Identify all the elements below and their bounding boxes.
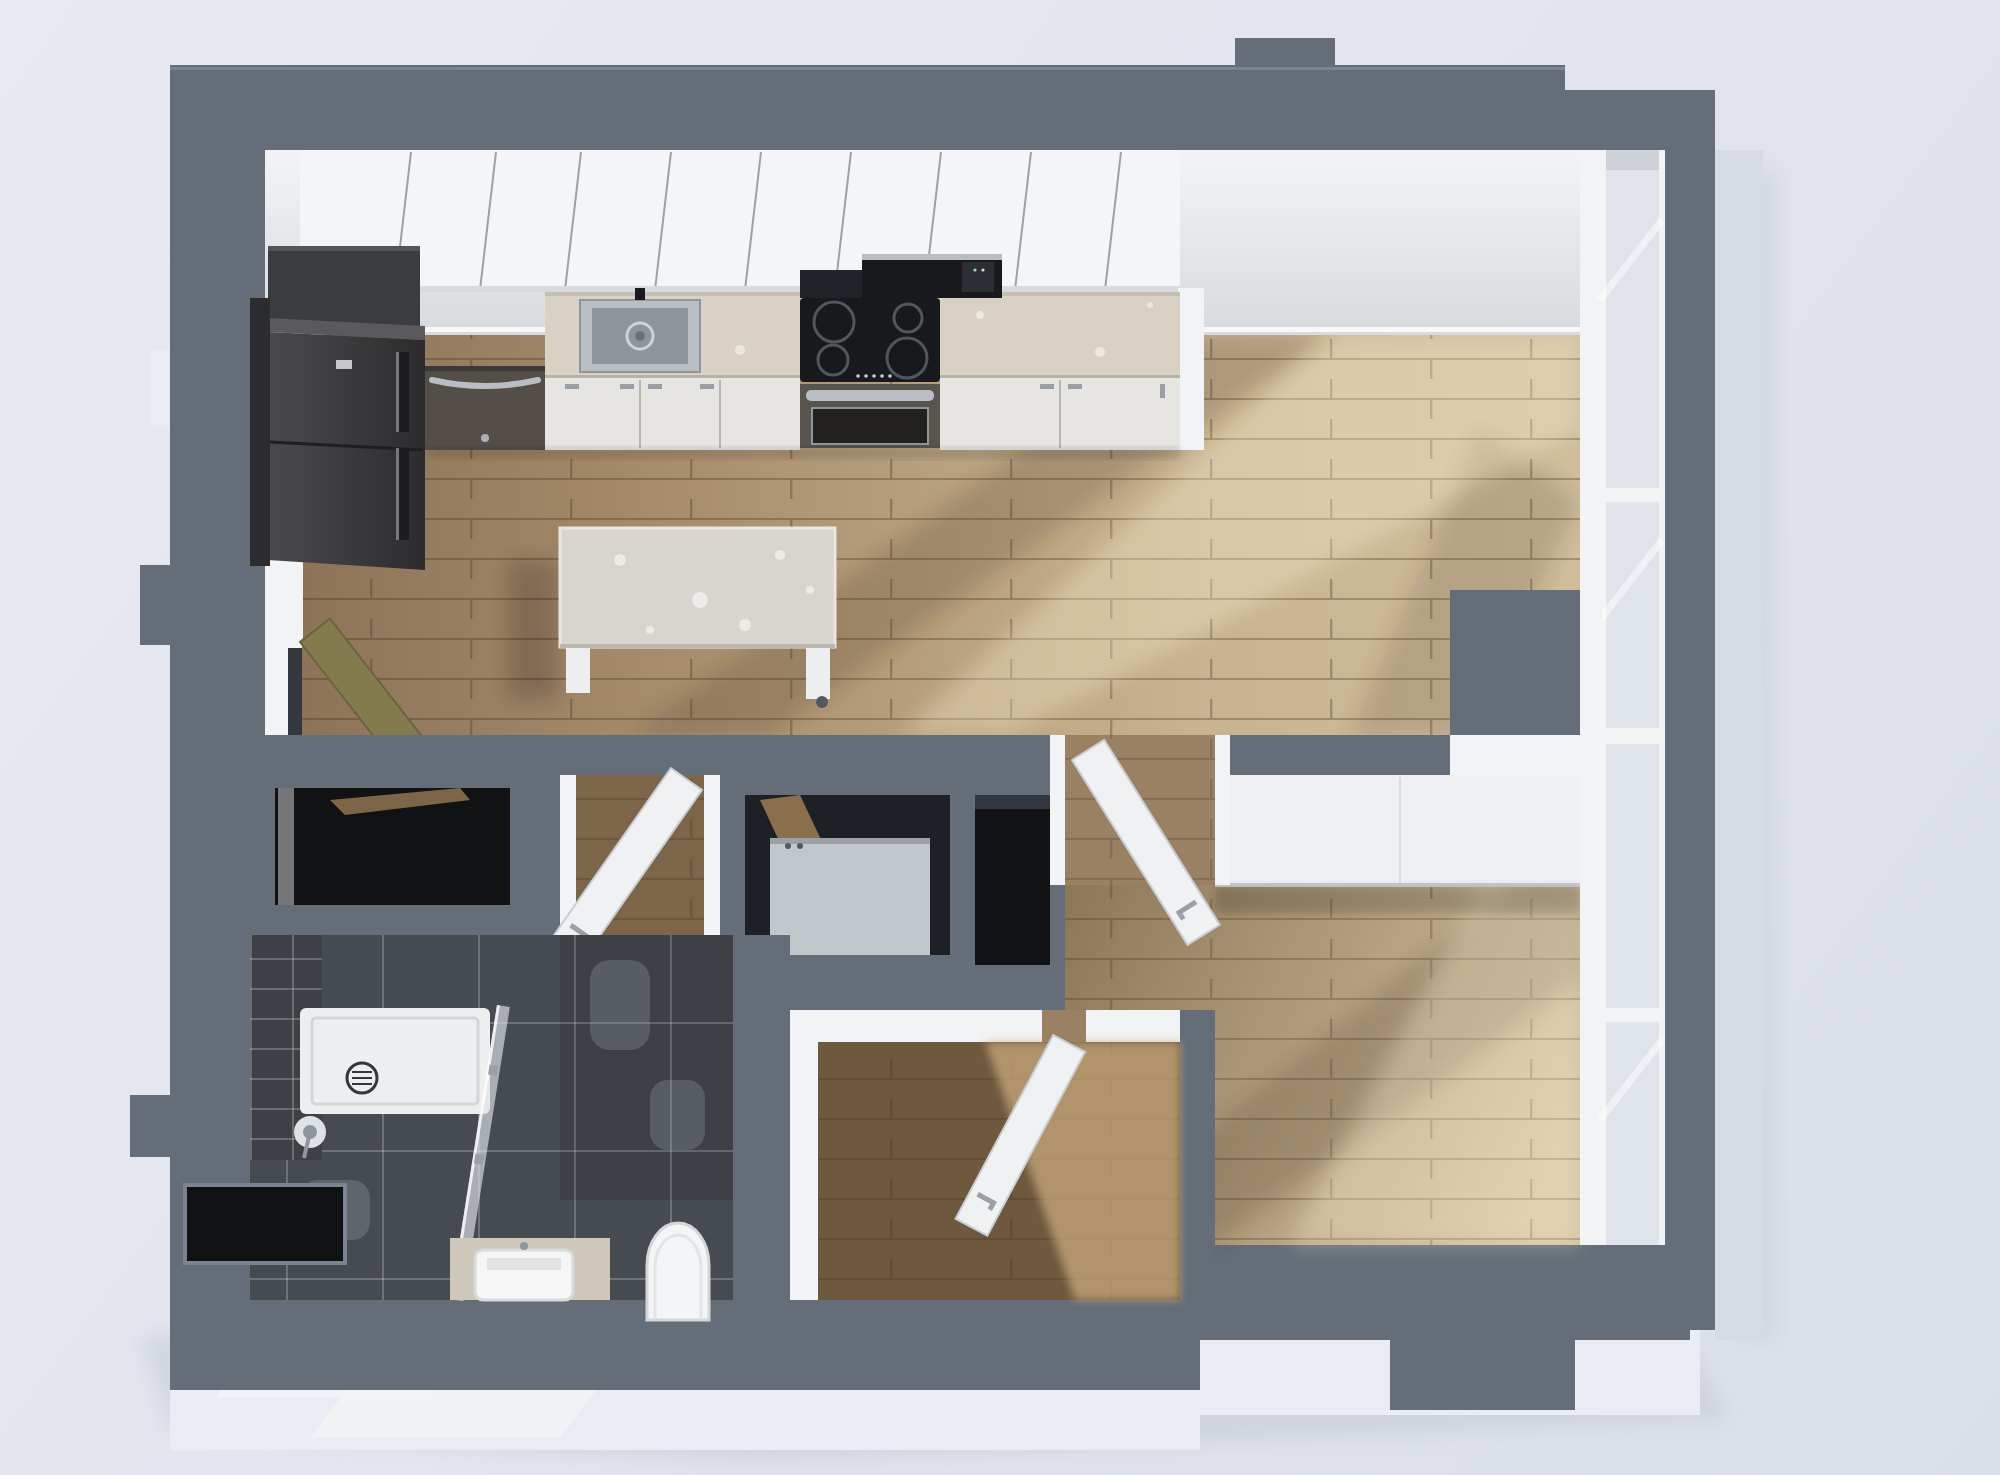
bedroom-wardrobe xyxy=(1215,775,1580,885)
closet-east-wall xyxy=(1180,1010,1215,1300)
basin-inner-shadow xyxy=(487,1258,561,1270)
dark-closet-glow xyxy=(975,795,1050,809)
dishwasher xyxy=(425,366,545,450)
island-leg-left xyxy=(566,645,590,693)
wall-oven xyxy=(800,384,940,448)
wardrobe-edge xyxy=(1215,883,1580,887)
exterior-face-right xyxy=(1715,150,1763,1340)
vanity-basin xyxy=(475,1250,573,1300)
island-caster xyxy=(816,696,828,708)
wall-west-notch xyxy=(140,565,172,645)
bath-closet-wall xyxy=(733,935,790,1300)
wall-north-notch xyxy=(1235,38,1335,68)
window-wall xyxy=(1580,150,1665,1245)
wall-south-notch-block xyxy=(1390,1310,1575,1410)
wall-north-highlight xyxy=(170,67,1565,70)
coat-closet-inner-face xyxy=(278,788,294,905)
water-heater xyxy=(770,838,930,955)
fridge-side-panel xyxy=(250,298,270,566)
exterior-sliver-left xyxy=(150,350,172,425)
refrigerator xyxy=(250,246,425,570)
exterior-step-2 xyxy=(310,1385,600,1438)
floorplan-stage xyxy=(0,0,2000,1475)
upper-cabinet-shadow-edge xyxy=(300,286,1180,292)
toilet xyxy=(647,1223,709,1320)
vanity-faucet xyxy=(520,1242,528,1250)
island-leg-right xyxy=(806,645,830,699)
upper-cabinets xyxy=(300,150,1180,292)
wardrobe-floor-shadow xyxy=(1215,887,1580,913)
faucet xyxy=(635,288,645,300)
apartment-3d-floorplan xyxy=(0,0,2000,1475)
cabinet-floor-shadow xyxy=(430,448,1180,458)
living-bedroom-wall-jut xyxy=(1450,590,1580,735)
mid-wall-left xyxy=(265,735,1065,775)
dark-closet-interior xyxy=(975,795,1050,965)
bedroom-door-jamb-right xyxy=(1215,735,1230,885)
wall-east-outer xyxy=(1665,90,1715,1330)
wall-jut-south-face xyxy=(1450,735,1580,775)
island-edge xyxy=(560,644,835,648)
shower-pan xyxy=(300,1008,490,1114)
vanity xyxy=(450,1238,610,1300)
bathroom-wall-niche xyxy=(185,1185,345,1263)
cabinet-end-panel xyxy=(1178,288,1204,450)
wall-north xyxy=(170,65,1565,150)
closet-north-face xyxy=(790,1010,1180,1042)
window-wall-jut-post xyxy=(1580,590,1602,740)
bathroom-west-notch xyxy=(130,1095,188,1157)
fridge-badge xyxy=(336,360,352,369)
island-shadow xyxy=(508,560,558,700)
water-heater-top xyxy=(770,838,930,844)
island-top xyxy=(560,528,835,647)
kitchen-sink xyxy=(580,288,700,372)
closet-west-face xyxy=(790,1010,818,1300)
bedroom-door-jamb-left xyxy=(1050,735,1065,885)
induction-cooktop xyxy=(800,298,940,382)
closet-doorway-threshold xyxy=(1042,1010,1086,1042)
hall-jamb-right xyxy=(704,775,720,935)
mid-wall-right xyxy=(1215,735,1450,775)
